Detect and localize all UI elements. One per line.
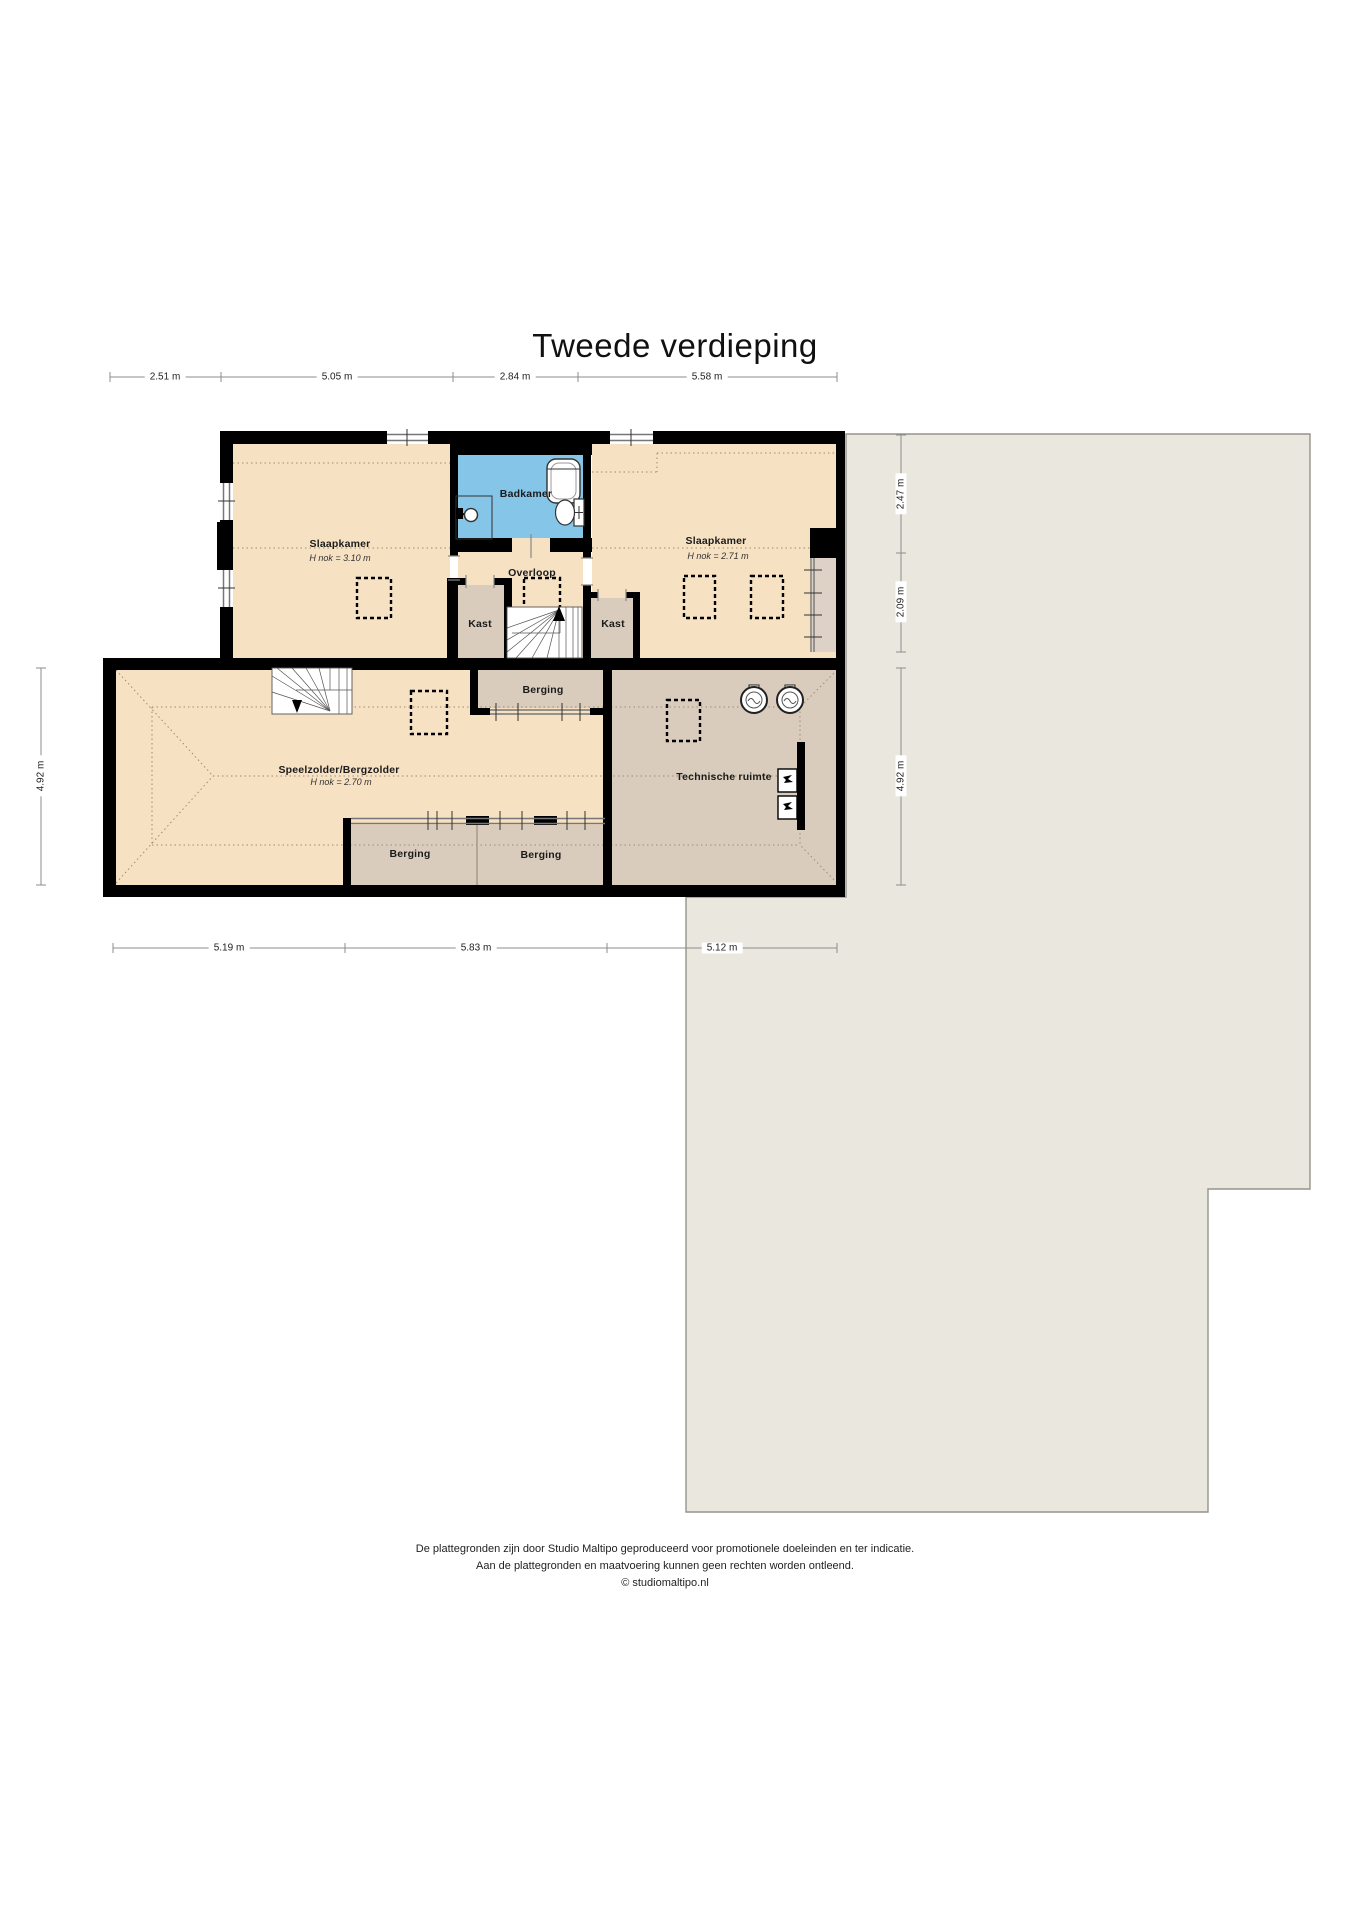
dim-bottom-1: 5.19 m [209, 943, 250, 954]
floorplan-page: Tweede verdieping 2.51 m 5.05 m 2.84 m 5… [0, 0, 1358, 1920]
room-label-kast-right: Kast [601, 618, 625, 630]
height-note-slaapkamer-right: H nok = 2.71 m [687, 551, 748, 561]
room-label-berging-bottom-right: Berging [520, 849, 561, 861]
dim-right-1: 2.47 m [896, 474, 907, 515]
dim-top-1: 2.51 m [145, 372, 186, 383]
footer-disclaimer: De plattegronden zijn door Studio Maltip… [416, 1541, 914, 1592]
room-label-badkamer: Badkamer [500, 488, 552, 500]
staircase-up [507, 606, 582, 658]
dim-bottom-3: 5.12 m [702, 943, 743, 954]
toilet-icon [556, 499, 585, 526]
footer-line-2: Aan de plattegronden en maatvoering kunn… [416, 1558, 914, 1575]
footer-line-1: De plattegronden zijn door Studio Maltip… [416, 1541, 914, 1558]
room-label-technische-ruimte: Technische ruimte [676, 771, 771, 783]
dim-left-1: 4.92 m [36, 756, 47, 797]
page-title: Tweede verdieping [532, 327, 818, 365]
staircase-down [272, 668, 352, 714]
dim-bottom-2: 5.83 m [456, 943, 497, 954]
room-label-berging-top: Berging [522, 684, 563, 696]
room-label-slaapkamer-right: Slaapkamer [686, 535, 747, 547]
room-label-overloop: Overloop [508, 567, 556, 579]
room-label-berging-bottom-left: Berging [389, 848, 430, 860]
room-label-speelzolder: Speelzolder/Bergzolder [278, 764, 399, 776]
dim-top-2: 5.05 m [317, 372, 358, 383]
dim-right-3: 4.92 m [896, 756, 907, 797]
height-note-slaapkamer-left: H nok = 3.10 m [309, 553, 370, 563]
room-label-kast-left: Kast [468, 618, 492, 630]
dim-top-3: 2.84 m [495, 372, 536, 383]
dim-right-2: 2.09 m [896, 582, 907, 623]
footer-line-3: © studiomaltipo.nl [416, 1575, 914, 1592]
dim-top-4: 5.58 m [687, 372, 728, 383]
floor-plan-drawing [0, 0, 1358, 1920]
room-label-slaapkamer-left: Slaapkamer [310, 538, 371, 550]
height-note-speelzolder: H nok = 2.70 m [310, 777, 371, 787]
